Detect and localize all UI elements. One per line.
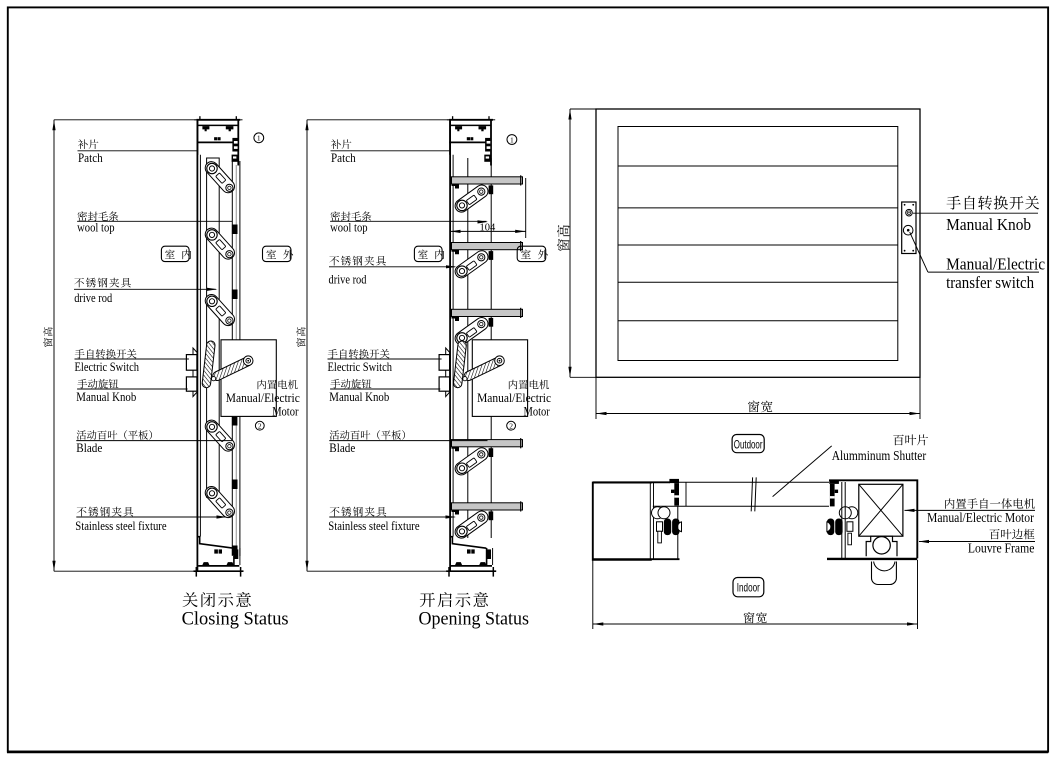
svg-text:2: 2: [509, 421, 513, 430]
svg-text:Manual/Electric: Manual/Electric: [946, 255, 1045, 274]
svg-text:Patch: Patch: [78, 151, 103, 165]
svg-text:Manual/Electric: Manual/Electric: [477, 391, 551, 405]
svg-text:104: 104: [480, 223, 497, 234]
svg-text:Electric Switch: Electric Switch: [328, 360, 393, 374]
svg-text:wool top: wool top: [77, 221, 115, 235]
svg-text:drive rod: drive rod: [329, 272, 368, 286]
svg-text:Outdoor: Outdoor: [734, 438, 763, 452]
svg-text:1: 1: [510, 135, 514, 144]
svg-text:Motor: Motor: [524, 405, 551, 419]
svg-text:Manual/Electric: Manual/Electric: [226, 391, 300, 405]
svg-text:Indoor: Indoor: [737, 581, 760, 595]
svg-text:Alumminum Shutter: Alumminum Shutter: [832, 448, 927, 463]
svg-text:Opening Status: Opening Status: [419, 608, 530, 629]
svg-text:1: 1: [257, 134, 261, 143]
svg-text:drive rod: drive rod: [74, 291, 113, 305]
svg-text:Manual Knob: Manual Knob: [329, 390, 389, 404]
svg-text:Manual Knob: Manual Knob: [76, 390, 136, 404]
svg-text:Manual/Electric Motor: Manual/Electric Motor: [927, 510, 1034, 525]
svg-text:Louvre Frame: Louvre Frame: [968, 541, 1035, 556]
svg-text:Patch: Patch: [331, 151, 356, 165]
svg-text:Electric Switch: Electric Switch: [75, 360, 140, 374]
svg-text:2: 2: [258, 421, 262, 430]
svg-text:wool top: wool top: [330, 221, 368, 235]
svg-text:Blade: Blade: [329, 441, 355, 455]
svg-text:Closing Status: Closing Status: [182, 608, 289, 629]
svg-text:transfer switch: transfer switch: [946, 273, 1035, 292]
svg-text:Stainless steel fixture: Stainless steel fixture: [75, 519, 167, 533]
svg-text:Blade: Blade: [76, 441, 102, 455]
svg-text:Manual Knob: Manual Knob: [946, 215, 1031, 234]
svg-text:Motor: Motor: [272, 405, 299, 419]
svg-text:Stainless steel fixture: Stainless steel fixture: [328, 519, 420, 533]
